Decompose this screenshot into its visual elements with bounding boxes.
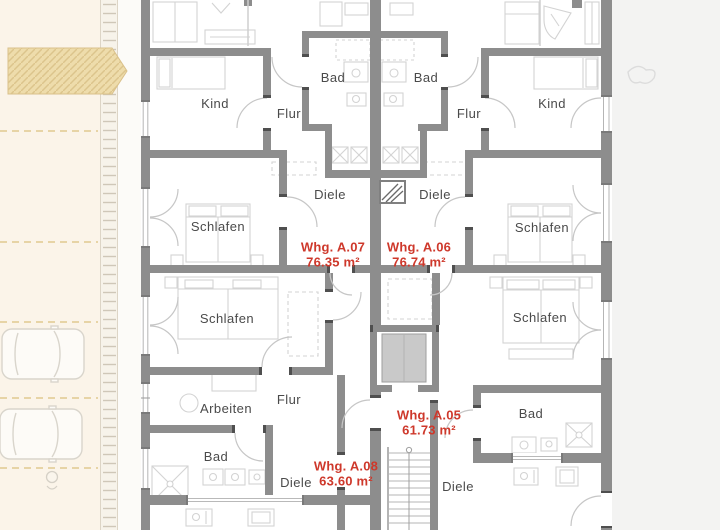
room-label-diele-upper-right: Diele xyxy=(419,188,451,202)
floor-plan-page: Kind Flur Bad Bad Flur Kind Diele Diele … xyxy=(0,0,720,530)
car-icon xyxy=(0,406,82,462)
driveway-hatch xyxy=(8,48,127,94)
apartment-name: Whg. A.05 xyxy=(397,408,461,423)
apartment-area: 61.73 m² xyxy=(397,423,461,438)
apartment-area: 63.60 m² xyxy=(314,474,378,489)
apartment-area: 76.74 m² xyxy=(387,255,451,270)
room-label-schlafen-upper-left: Schlafen xyxy=(191,220,245,234)
apartment-name: Whg. A.07 xyxy=(301,240,365,255)
room-label-arbeiten: Arbeiten xyxy=(200,402,252,416)
room-label-diele-lower-left: Diele xyxy=(280,476,312,490)
room-label-bad-upper-left: Bad xyxy=(321,71,345,85)
elevator-icon xyxy=(382,334,426,382)
room-label-schlafen-lower-left: Schlafen xyxy=(200,312,254,326)
room-label-kind-right: Kind xyxy=(538,97,566,111)
apartment-label-whg-a08: Whg. A.08 63.60 m² xyxy=(314,459,378,488)
apartment-label-whg-a06: Whg. A.06 76.74 m² xyxy=(387,240,451,269)
apartment-name: Whg. A.06 xyxy=(387,240,451,255)
room-label-bad-lower-right: Bad xyxy=(519,407,543,421)
apartment-name: Whg. A.08 xyxy=(314,459,378,474)
apartment-area: 76.35 m² xyxy=(301,255,365,270)
apartment-label-whg-a05: Whg. A.05 61.73 m² xyxy=(397,408,461,437)
room-label-kind-left: Kind xyxy=(201,97,229,111)
room-label-bad-upper-right: Bad xyxy=(414,71,438,85)
shaft-hatch-icon xyxy=(380,181,405,203)
room-label-flur-upper-left: Flur xyxy=(277,107,301,121)
room-label-bad-lower-left: Bad xyxy=(204,450,228,464)
room-label-flur-upper-right: Flur xyxy=(457,107,481,121)
room-label-diele-upper-left: Diele xyxy=(314,188,346,202)
apartment-label-whg-a07: Whg. A.07 76.35 m² xyxy=(301,240,365,269)
room-label-schlafen-lower-right: Schlafen xyxy=(513,311,567,325)
room-label-diele-lower-right: Diele xyxy=(442,480,474,494)
car-icon xyxy=(2,326,84,382)
room-label-schlafen-upper-right: Schlafen xyxy=(515,221,569,235)
room-label-flur-lower-left: Flur xyxy=(277,393,301,407)
